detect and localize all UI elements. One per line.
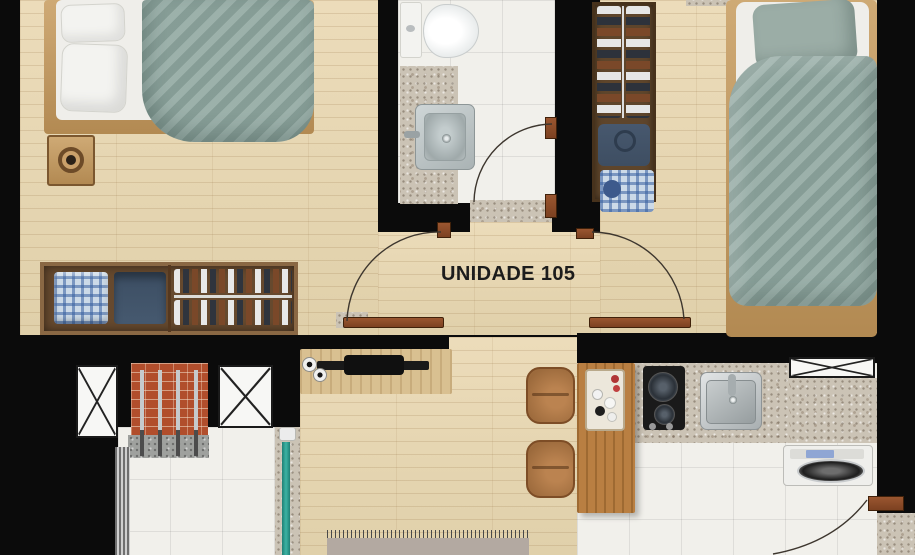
- condiment: [592, 389, 603, 400]
- balcony-glass-door: [282, 442, 290, 555]
- wardrobe-divider: [168, 265, 171, 332]
- condiment: [604, 397, 616, 409]
- wardrobe-rail: [174, 295, 292, 298]
- wall-segment: [378, 203, 470, 232]
- door-leaf: [589, 317, 691, 328]
- balcony-door-handle: [279, 427, 296, 441]
- grill-skewer: [140, 370, 144, 456]
- pillow: [60, 3, 125, 43]
- ventilation-shaft-icon: [218, 365, 273, 428]
- shoe-column: [597, 6, 621, 118]
- grill-skewer: [176, 370, 180, 456]
- double-bed-duvet: [142, 0, 314, 142]
- ventilation-shaft-icon: [76, 365, 118, 438]
- condiment: [595, 406, 605, 416]
- floor-plan: UNIDADE 105: [0, 0, 915, 555]
- shoe-row: [174, 269, 292, 293]
- grill-skewer: [158, 370, 162, 456]
- cooktop-knob: [649, 423, 656, 430]
- sink-faucet: [404, 131, 420, 138]
- ventilation-shaft-icon: [789, 357, 875, 378]
- dining-chair: [526, 367, 575, 424]
- folded-shirt-plaid: [54, 272, 108, 324]
- tv: [344, 355, 404, 375]
- dining-chair: [526, 440, 575, 498]
- kitchen-faucet: [728, 374, 736, 396]
- folded-shirt-navy: [114, 272, 166, 324]
- condiment: [613, 385, 620, 392]
- grill-skewer: [194, 370, 198, 456]
- counter-return: [877, 513, 915, 555]
- sink-drain: [442, 134, 451, 143]
- single-bed-duvet: [729, 56, 877, 306]
- kitchen-drain: [729, 396, 737, 404]
- nightstand-lamp-center: [66, 155, 76, 165]
- unit-label: UNIDADE 105: [441, 263, 575, 286]
- chair-seam: [532, 393, 569, 396]
- chair-seam: [532, 466, 569, 469]
- shirt-collar: [603, 180, 621, 198]
- door-frame: [437, 222, 451, 238]
- burner: [648, 372, 678, 402]
- washer-door: [797, 459, 865, 483]
- door-frame: [545, 117, 557, 139]
- rug: [327, 538, 529, 555]
- shoe-row: [174, 300, 292, 325]
- balcony-rail-track: [115, 447, 130, 555]
- condiment: [611, 375, 619, 383]
- condiment: [607, 412, 617, 422]
- pillow: [60, 43, 128, 113]
- jacket-hood: [614, 130, 636, 152]
- washer-display: [806, 450, 834, 458]
- door-threshold: [470, 200, 552, 222]
- door-frame: [545, 194, 557, 218]
- toilet-flush-button: [406, 25, 415, 32]
- kitchen-counter: [790, 378, 877, 443]
- shoe-column: [626, 6, 650, 118]
- speaker-icon: [313, 368, 327, 382]
- burner: [654, 404, 675, 425]
- door-frame: [868, 496, 904, 511]
- door-frame: [576, 228, 594, 239]
- door-leaf: [343, 317, 444, 328]
- rack-divider: [622, 6, 624, 118]
- cooktop-knob: [666, 423, 673, 430]
